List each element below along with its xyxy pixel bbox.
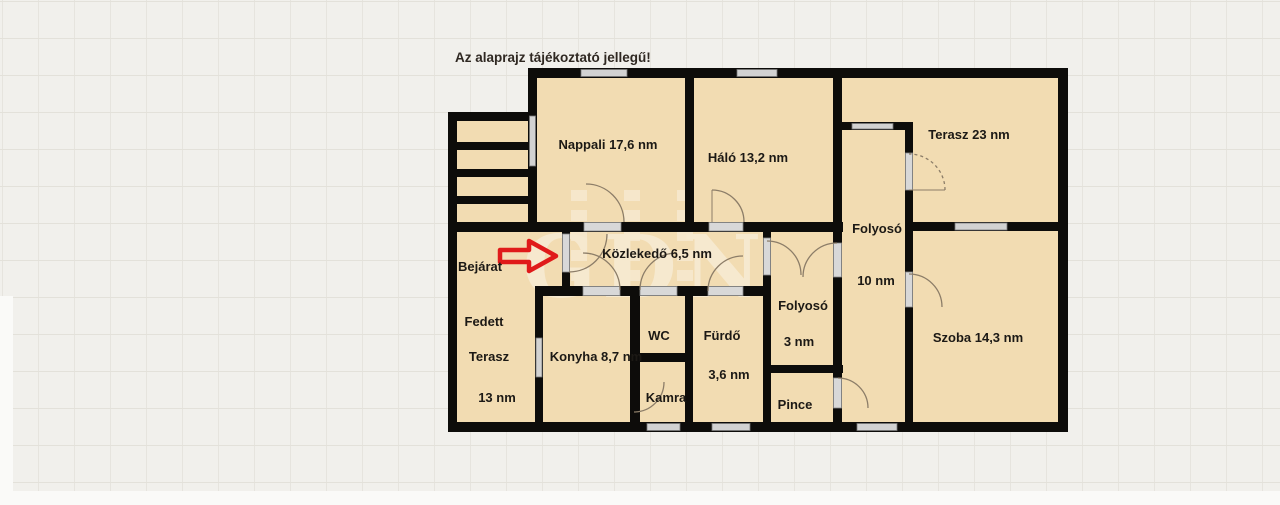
window-terasz-szoba <box>955 223 1007 230</box>
window-kamra-bottom <box>647 424 680 431</box>
floorplan-drawing: GDN <box>0 0 1280 505</box>
window-fedett-konyha <box>536 338 542 377</box>
door-nappali <box>584 223 621 232</box>
room-label-konyha: Konyha 8,7 nm <box>550 349 642 364</box>
room-label-kozlekedo: Közlekedő 6,5 nm <box>602 246 712 261</box>
room-label-fedett-line2: Terasz <box>469 349 510 364</box>
room-label-bejarat: Bejárat <box>458 259 503 274</box>
room-label-fedett-line3: 13 nm <box>478 390 516 405</box>
room-label-furdo-area: 3,6 nm <box>708 367 749 382</box>
room-label-kamra: Kamra <box>646 390 687 405</box>
window-furdo-bottom <box>712 424 750 431</box>
door-szoba <box>906 272 913 307</box>
floorplan-canvas: GDN <box>0 0 1280 505</box>
room-label-pince: Pince <box>778 397 813 412</box>
window-stairs <box>530 116 536 166</box>
door-entry <box>563 234 570 272</box>
room-label-wc: WC <box>648 328 670 343</box>
door-folyoso3-folyoso10 <box>834 243 842 277</box>
window-folyoso-bottom <box>857 424 897 431</box>
room-label-szoba: Szoba 14,3 nm <box>933 330 1023 345</box>
window-nappali-top <box>581 70 627 77</box>
room-label-folyoso10-area: 10 nm <box>857 273 895 288</box>
page-edge-left <box>0 296 13 505</box>
door-konyha <box>583 287 620 296</box>
room-label-nappali: Nappali 17,6 nm <box>559 137 658 152</box>
plan-disclaimer-title: Az alaprajz tájékoztató jellegű! <box>455 50 651 65</box>
room-label-halo: Háló 13,2 nm <box>708 150 788 165</box>
page-edge-bottom <box>0 491 1280 505</box>
window-halo-top <box>737 70 777 77</box>
window-folyoso-top <box>852 124 893 130</box>
room-label-folyoso3-name: Folyosó <box>778 298 828 313</box>
room-label-folyoso10-name: Folyosó <box>852 221 902 236</box>
watermark-text: GDN <box>523 217 768 318</box>
door-furdo <box>708 287 743 296</box>
door-kozlekedo-folyoso3 <box>764 238 771 275</box>
room-label-furdo-name: Fürdő <box>704 328 741 343</box>
room-label-terasz: Terasz 23 nm <box>928 127 1009 142</box>
door-halo <box>709 223 743 232</box>
door-pince <box>834 378 842 408</box>
room-label-fedett-line1: Fedett <box>465 314 505 329</box>
door-wc <box>640 287 677 296</box>
area-szoba-block <box>905 222 1068 432</box>
room-label-folyoso3-area: 3 nm <box>784 334 814 349</box>
door-terasz <box>906 153 913 190</box>
